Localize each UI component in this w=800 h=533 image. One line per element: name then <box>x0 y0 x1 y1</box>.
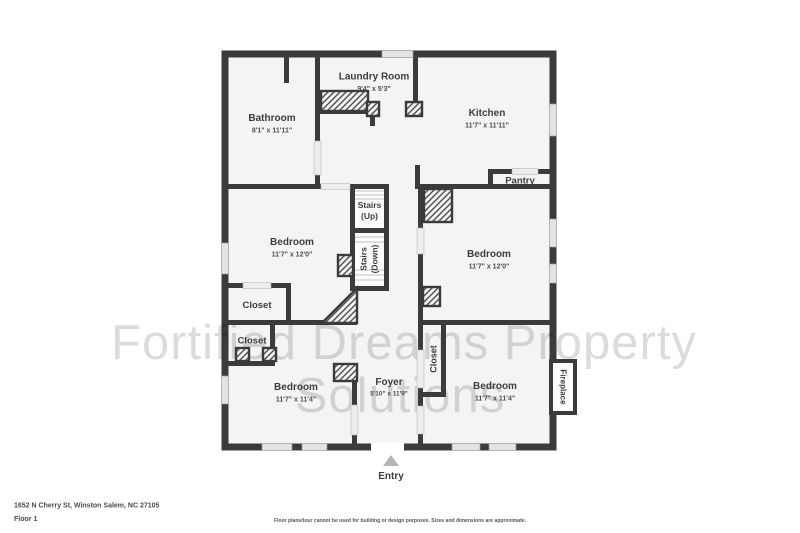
wall <box>284 54 289 83</box>
footer-disclaimer: Floor plans/tour cannot be used for buil… <box>274 518 526 524</box>
hatched-fixture-laundry <box>321 91 368 111</box>
room-label-laundry: Laundry Room <box>339 72 410 83</box>
hatched-fixture <box>367 102 379 116</box>
door-opening <box>417 228 424 254</box>
hatched-fixture <box>334 364 357 381</box>
room-label-foyer: Foyer <box>375 377 402 388</box>
stairs-up-label2: (Up) <box>361 211 378 221</box>
hatched-fixture <box>423 287 440 306</box>
door-opening <box>314 141 321 175</box>
door-opening <box>417 350 424 388</box>
hatched-fixture <box>263 348 276 361</box>
footer-floor-label: Floor 1 <box>14 516 37 523</box>
room-label-bathroom: Bathroom <box>248 113 295 124</box>
room-label-bedroom-left: Bedroom <box>270 237 314 248</box>
hatched-fixture-chimney <box>424 189 452 222</box>
wall <box>418 392 446 397</box>
door-opening <box>321 184 350 190</box>
room-dims-bedroom-bottom-right: 11'7" x 11'4" <box>475 396 515 403</box>
door-opening <box>512 169 538 175</box>
window <box>222 376 229 404</box>
stairs-down-label2: (Down) <box>370 244 380 273</box>
room-dims-bathroom: 8'1" x 11'11" <box>252 128 292 135</box>
stairs-down-label: Stairs <box>359 247 369 271</box>
window <box>262 444 292 451</box>
room-label-bedroom-bottom-left: Bedroom <box>274 382 318 393</box>
room-dims-bedroom-bottom-left: 11'7" x 11'4" <box>276 397 316 404</box>
room-label-closet-small: Closet <box>237 336 267 347</box>
room-label-closet-foyer: Closet <box>429 345 439 373</box>
room-label-bedroom-right: Bedroom <box>467 249 511 260</box>
room-dims-foyer: 5'10" x 11'9" <box>370 391 408 398</box>
room-label-bedroom-bottom-right: Bedroom <box>473 381 517 392</box>
room-dims-bedroom-left: 11'7" x 12'0" <box>272 252 313 259</box>
window <box>550 264 557 283</box>
window <box>382 51 413 58</box>
hatched-fixture <box>406 102 422 116</box>
wall <box>441 325 446 397</box>
watermark-line1: Fortified Dreams Property <box>111 316 697 370</box>
fireplace: Fireplace <box>551 361 575 413</box>
room-dims-laundry: 9'4" x 5'3" <box>357 86 390 93</box>
door-opening <box>417 406 424 434</box>
wall <box>225 184 323 189</box>
window <box>302 444 327 451</box>
window <box>452 444 480 451</box>
room-label-closet-mid: Closet <box>242 300 272 311</box>
entry-label: Entry <box>378 471 404 482</box>
hatched-fixture <box>338 255 353 276</box>
wall <box>413 54 418 106</box>
wall <box>350 228 389 233</box>
wall <box>286 283 291 325</box>
window <box>222 243 229 274</box>
wall <box>488 169 493 188</box>
entry-opening <box>371 443 404 452</box>
window <box>550 219 557 247</box>
door-opening <box>243 283 271 289</box>
window <box>550 104 557 136</box>
floor-plan-page: Fortified Dreams Property Solutions <box>0 0 800 533</box>
stairs-down-label-group: Stairs (Down) <box>359 244 380 273</box>
hatched-fixture <box>236 348 249 361</box>
room-label-kitchen: Kitchen <box>469 108 506 119</box>
room-label-pantry: Pantry <box>505 176 535 187</box>
room-dims-kitchen: 11'7" x 11'11" <box>465 123 509 130</box>
wall <box>418 320 553 325</box>
footer-address: 1652 N Cherry St, Winston Salem, NC 2710… <box>14 503 160 510</box>
fireplace-label: Fireplace <box>559 369 568 405</box>
wall <box>384 184 389 291</box>
room-dims-bedroom-right: 11'7" x 12'0" <box>469 264 510 271</box>
window <box>489 444 516 451</box>
stairs-up-label: Stairs <box>358 200 382 210</box>
wall <box>415 165 420 187</box>
wall <box>350 184 389 189</box>
door-opening <box>351 405 358 435</box>
floor-plan-canvas: Fortified Dreams Property Solutions <box>0 0 800 533</box>
